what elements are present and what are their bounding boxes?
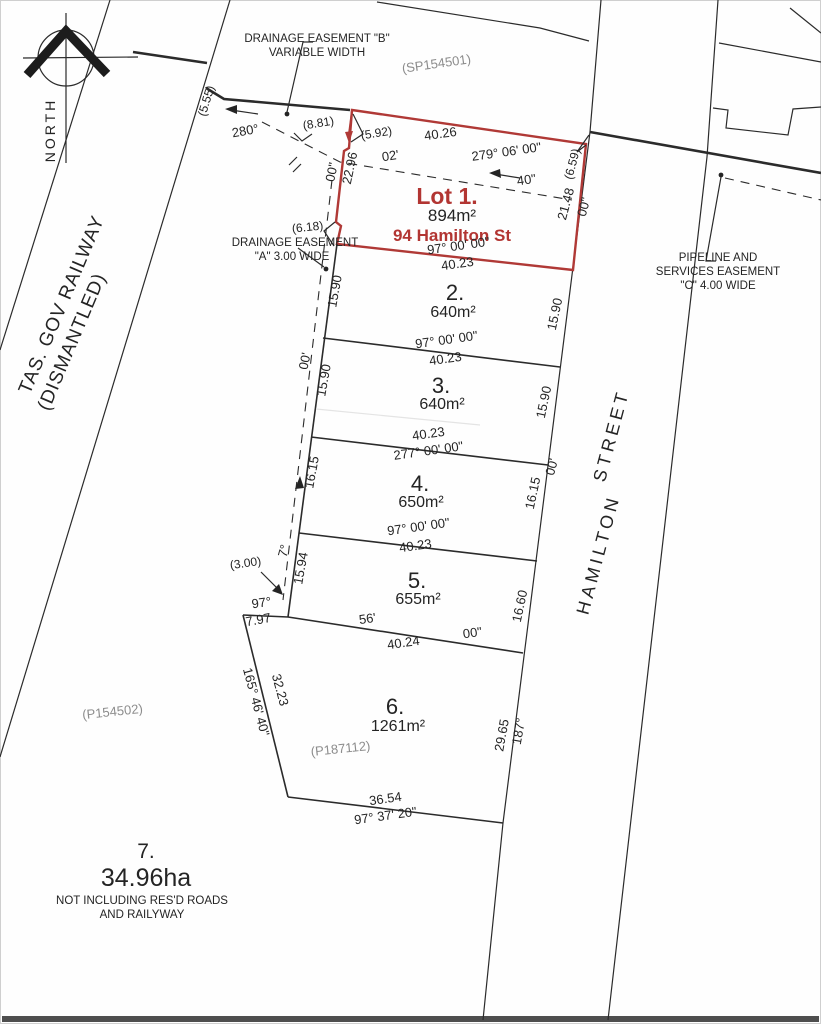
label-north-label: NORTH [42, 98, 58, 163]
scan-bottom-edge [2, 1016, 819, 1022]
easement-c-leader-dot [719, 173, 724, 178]
label-lot3-area: 640m² [419, 396, 465, 413]
label-lot1-area: 894m² [428, 206, 477, 225]
easement-a-leader-dot [324, 267, 329, 272]
label-lot7-area: 34.96ha [101, 864, 191, 892]
label-bearing-frag-00s-d: 00" [462, 624, 483, 642]
label-lot5-area: 655m² [395, 591, 441, 608]
label-bearing-frag-97d: 97° [251, 594, 273, 612]
label-bearing-frag-56m: 56' [358, 610, 377, 627]
label-lot4-number: 4. [411, 471, 429, 496]
label-easement-c-line2: SERVICES EASEMENT [656, 266, 780, 278]
label-easement-c-line3: "C" 4.00 WIDE [680, 280, 756, 292]
label-lot2-number: 2. [446, 280, 464, 305]
label-easement-b-line1: DRAINAGE EASEMENT "B" [244, 33, 389, 45]
label-lot5-number: 5. [408, 568, 426, 593]
label-lot6-number: 6. [386, 694, 404, 719]
survey-plan-drawing: NORTHTAS. GOV RAILWAY(DISMANTLED)HAMILTO… [0, 0, 821, 1024]
label-bearing-frag-02m: 02' [381, 147, 400, 164]
easement-b-leader-dot [285, 112, 290, 117]
label-lot6-area: 1261m² [371, 718, 426, 735]
label-lot7-note-2: AND RAILYWAY [100, 909, 185, 921]
label-lot3-number: 3. [432, 373, 450, 398]
label-lot7-number: 7. [137, 840, 155, 863]
label-easement-c-line1: PIPELINE AND [679, 252, 758, 264]
label-easement-a-line2: "A" 3.00 WIDE [255, 251, 330, 263]
label-lot2-area: 640m² [430, 304, 476, 321]
label-lot7-note-1: NOT INCLUDING RES'D ROADS [56, 895, 228, 907]
label-easement-a-line1: DRAINAGE EASEMENT [232, 237, 359, 249]
label-bearing-frag-40s: 40" [516, 171, 537, 189]
survey-plan-page: NORTHTAS. GOV RAILWAY(DISMANTLED)HAMILTO… [0, 0, 821, 1024]
label-easement-b-line2: VARIABLE WIDTH [269, 47, 365, 59]
label-lot4-area: 650m² [398, 494, 444, 511]
